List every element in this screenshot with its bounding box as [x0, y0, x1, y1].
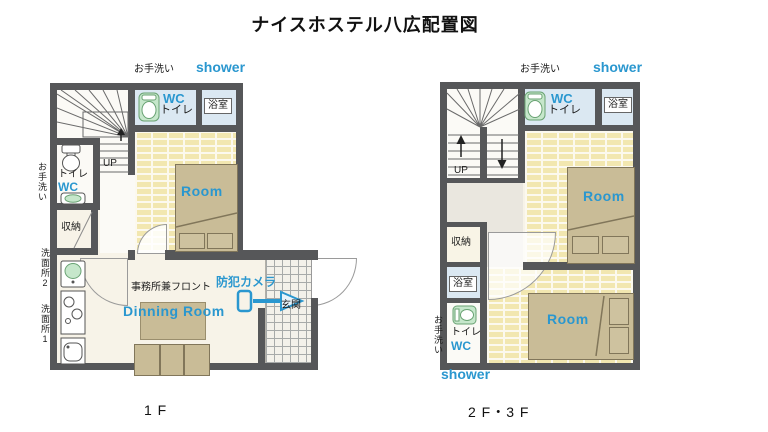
washstand-icon [60, 260, 86, 288]
storage-label: 収納 [451, 237, 471, 248]
wall-segment [50, 83, 243, 90]
bath-label: 浴室 [604, 97, 632, 113]
wash-label-top: お手洗い [134, 64, 174, 75]
page-title: ナイスホステル八広配置図 [0, 11, 730, 37]
room-label: Room [547, 311, 589, 327]
sofa-divider [159, 345, 161, 375]
wash-label-left: お手洗い [432, 315, 445, 355]
washstand1-label: 洗面所1 [39, 304, 52, 345]
wall-segment [128, 125, 236, 132]
room-label: Room [181, 183, 223, 199]
toilet-label: トイレ [451, 327, 481, 338]
sink-icon [60, 337, 86, 365]
bed-fold-line [176, 165, 237, 251]
bed-fold-line [568, 168, 634, 263]
toilet-icon [138, 92, 160, 122]
floor23-caption: 2 F・3 F [468, 402, 529, 422]
shower-label-top: shower [196, 59, 245, 75]
stove-icon [60, 290, 86, 335]
bath-label: 浴室 [204, 98, 232, 114]
wash-label-top: お手洗い [520, 64, 560, 75]
bed [567, 167, 635, 264]
toilet-icon [452, 305, 477, 325]
up-arrow-icon [115, 127, 127, 142]
toilet-label: トイレ [548, 104, 581, 116]
toilet-label: トイレ [58, 169, 88, 180]
wall-segment [518, 125, 633, 131]
toilet-icon [524, 91, 546, 121]
room-label: Room [583, 188, 625, 204]
wall-segment [128, 250, 135, 260]
floor1-caption: 1 F [144, 402, 167, 418]
up-label: UP [103, 158, 117, 169]
wall-segment [258, 308, 265, 370]
bath-label: 浴室 [449, 276, 477, 292]
shower-label-bottom: shower [441, 366, 490, 382]
wall-segment [440, 82, 640, 89]
washstand2-label: 洗面所2 [39, 248, 52, 289]
wall-segment [440, 262, 487, 267]
storage-label: 収納 [61, 222, 81, 233]
wc-label: WC [451, 339, 471, 353]
sofa [134, 344, 210, 376]
security-camera-label: 防犯カメラ [216, 273, 276, 290]
entrance-label: 玄関 [281, 300, 301, 311]
wall-segment [595, 89, 602, 126]
wall-segment [128, 90, 135, 175]
wash-label-left: お手洗い [36, 162, 49, 202]
wall-segment [196, 90, 202, 126]
floor-plan-page: ナイスホステル八広配置図 [0, 0, 768, 432]
wall-segment [311, 298, 318, 370]
bed [175, 164, 238, 252]
shower-label-top: shower [593, 59, 642, 75]
up-label: UP [454, 165, 468, 176]
toilet-icon [59, 144, 83, 172]
dining-room-label: Dinning Room [123, 303, 225, 319]
wall-segment [480, 222, 487, 363]
wall-segment [93, 138, 100, 210]
toilet-label: トイレ [160, 104, 193, 116]
wall-segment [440, 298, 487, 303]
office-front-label: 事務所兼フロント [131, 282, 211, 293]
wc-label: WC [58, 180, 78, 194]
sofa-divider [183, 345, 185, 375]
